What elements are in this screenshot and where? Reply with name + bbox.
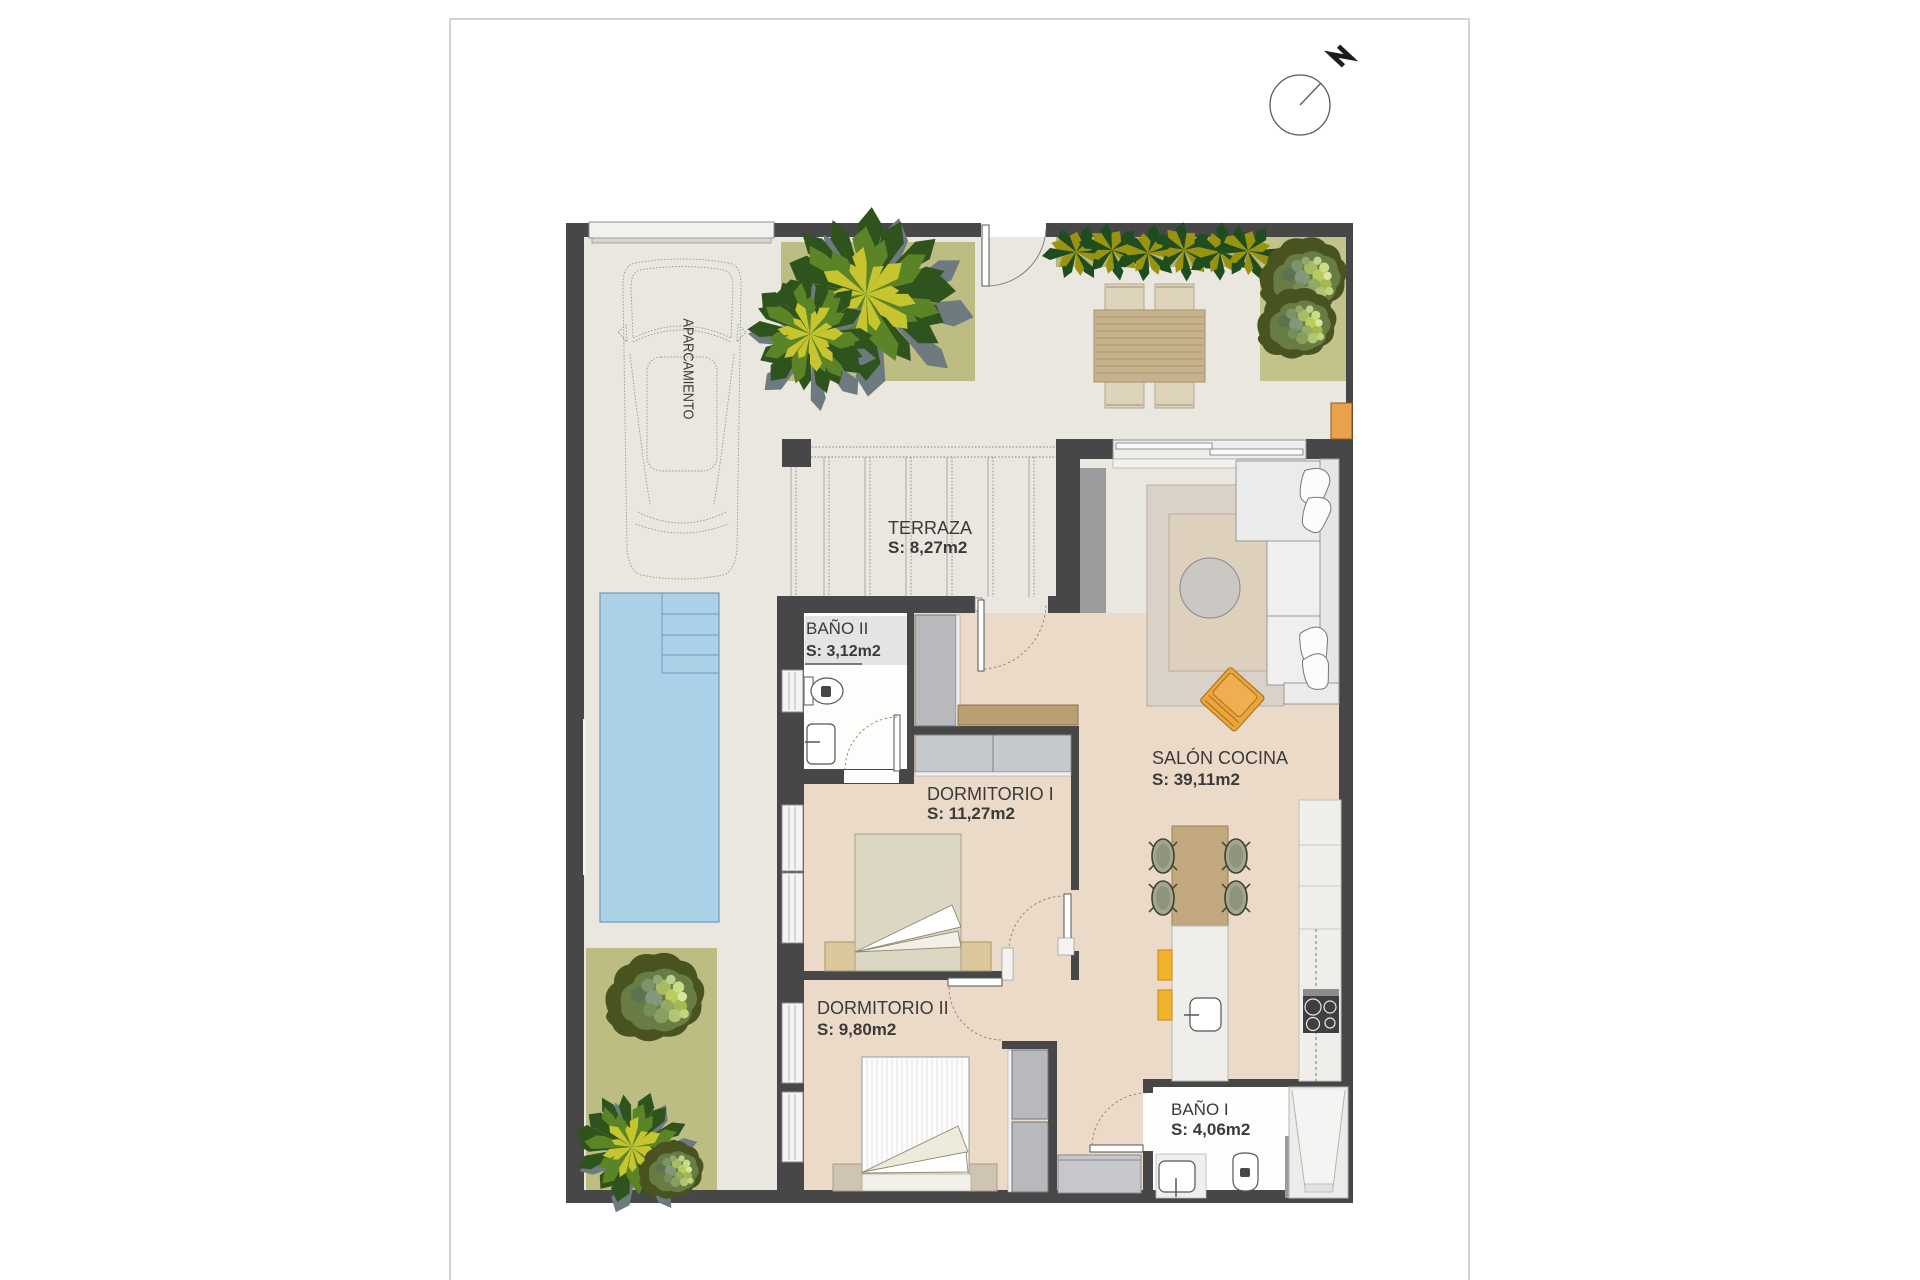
svg-text:SALÓN COCINA: SALÓN COCINA: [1152, 747, 1288, 768]
svg-text:TERRAZA: TERRAZA: [888, 518, 972, 538]
svg-text:BAÑO I: BAÑO I: [1171, 1100, 1229, 1119]
svg-text:APARCAMIENTO: APARCAMIENTO: [680, 319, 696, 420]
svg-text:S: 8,27m2: S: 8,27m2: [888, 538, 967, 557]
svg-text:BAÑO II: BAÑO II: [806, 619, 868, 638]
svg-text:S: 3,12m2: S: 3,12m2: [806, 643, 881, 660]
svg-text:S: 11,27m2: S: 11,27m2: [927, 804, 1015, 823]
svg-text:DORMITORIO II: DORMITORIO II: [817, 998, 949, 1018]
svg-text:S: 4,06m2: S: 4,06m2: [1171, 1120, 1250, 1139]
svg-text:S: 39,11m2: S: 39,11m2: [1152, 770, 1240, 789]
svg-text:S: 9,80m2: S: 9,80m2: [817, 1020, 896, 1039]
svg-text:DORMITORIO I: DORMITORIO I: [927, 784, 1054, 804]
